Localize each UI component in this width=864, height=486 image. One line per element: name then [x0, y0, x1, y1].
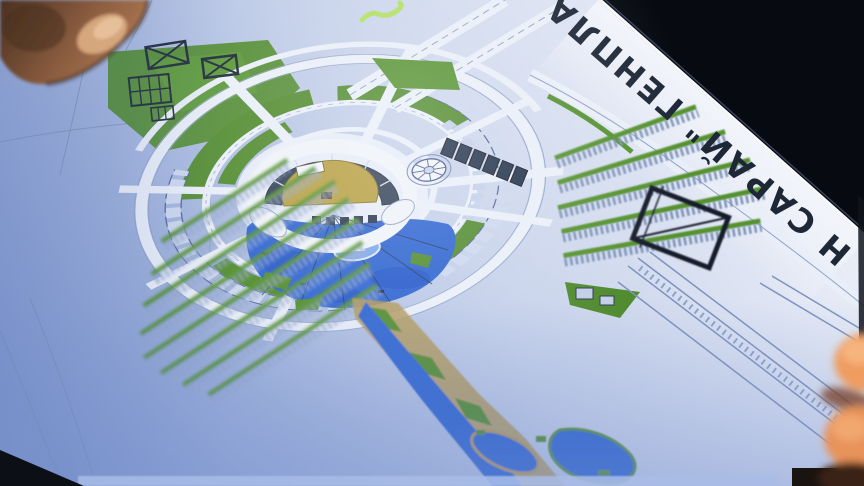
knuckle-shading — [2, 4, 66, 52]
photo-of-blueprint: Н САРАЙ" ГЕНПЛА — [0, 0, 864, 486]
right-edge-shadow — [858, 196, 864, 348]
bottom-light-strip — [78, 476, 778, 486]
